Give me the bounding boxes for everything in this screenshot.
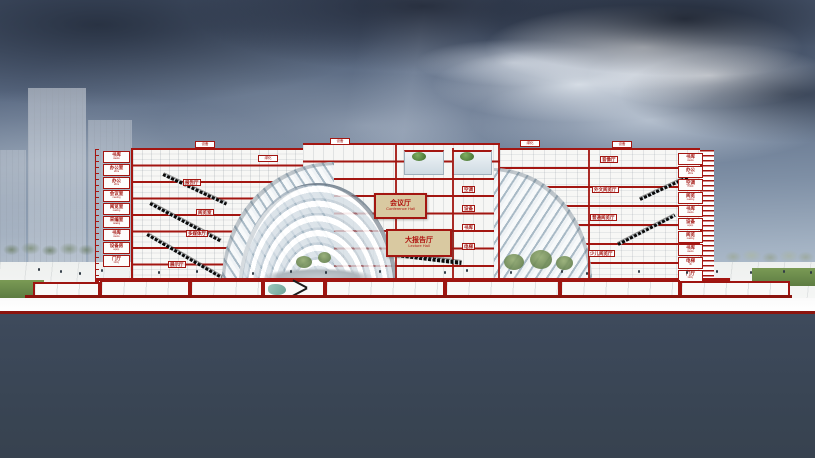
room-label-en: HVAC [680,186,701,188]
dimension-line [95,149,99,295]
room-label-chip: 空调 HVAC [678,179,703,191]
room-label-chip: 会议室 meeting [103,190,130,202]
room-label-en: catalog [105,223,128,225]
room-label-chip: 书库 stacks [678,153,703,165]
water-feature [268,284,286,295]
roof-unit-chip: 绿化 [520,140,540,147]
courtyard-tree [530,250,552,269]
room-label-chip: 办公室 office [103,164,130,176]
room-label-en: meeting [105,197,128,199]
courtyard-tree [504,254,524,270]
room-label-chip: 电梯 lift [678,257,703,269]
lecture-hall-label: 大报告厅 Lecture Hall [386,229,452,257]
room-label-en: lift [680,264,701,266]
roof-unit-chip: 设备 [195,141,215,148]
room-label-chip: 书库 stacks [103,151,130,163]
room-label: 展示厅 [168,261,186,268]
room-label-en: reading [105,210,128,212]
room-label-chip: 设备 equip. [678,218,703,230]
atrium-plant [296,256,312,268]
room-label: 电梯 [462,243,475,250]
room-label-en: office [105,171,128,173]
room-label-en: stacks [105,158,128,160]
room-label-en: equip. [680,225,701,227]
right-room-label-column: 书库 stacks 办公 office 空调 HVAC 阅览 reading 书… [678,153,703,282]
room-label: 外文阅览厅 [592,186,619,193]
room-label-en: reading [680,238,701,240]
room-label-en: equip. [105,249,128,251]
roof-unit-chip: 设备 [330,138,350,145]
roof-plant [412,152,426,161]
room-label-chip: 设备房 equip. [103,242,130,254]
left-room-label-column: 书库 stacks 办公室 office 办公 office 会议室 meeti… [103,151,130,267]
conference-hall-label: 会议厅 Conference Hall [374,193,427,219]
room-label: 阅览室 [196,209,214,216]
foreground-white-band [0,298,815,311]
room-label: 普通阅览厅 [590,214,617,221]
lecture-hall-label-en: Lecture Hall [388,244,450,249]
room-label-en: stacks [680,251,701,253]
room-label-chip: 书库 stacks [678,244,703,256]
room-label-chip: 门厅 lobby [678,270,703,282]
room-label-chip: 采编室 catalog [103,216,130,228]
courtyard-tree [556,256,573,270]
room-label-chip: 门厅 lobby [103,255,130,267]
room-label-en: reading [680,199,701,201]
section-rendering-scene: 会议厅 Conference Hall 大报告厅 Lecture Hall 书库… [0,0,815,458]
room-label: 设备 [462,205,475,212]
room-label-chip: 办公 office [678,166,703,178]
roof-plant [460,152,474,161]
roof-unit-chip: 绿化 [258,155,278,162]
room-label: 书库 [462,224,475,231]
room-label-en: office [105,184,128,186]
room-label-chip: 书库 stacks [678,205,703,217]
conference-hall-label-en: Conference Hall [376,207,425,212]
room-label-en: stacks [680,160,701,162]
foreground-water-plane [0,314,815,458]
room-label: 音像厅 [600,156,618,163]
room-label-en: lobby [680,277,701,279]
atrium-plant [318,252,331,263]
room-label: 少儿阅览厅 [588,250,615,257]
room-label-en: stacks [105,236,128,238]
room-label: 报告厅 [183,179,201,186]
pedestrian-figures [38,268,40,271]
room-label-chip: 办公 office [103,177,130,189]
room-label-chip: 书库 stacks [103,229,130,241]
room-label-chip: 阅览 reading [678,231,703,243]
roof-unit-chip: 设备 [612,141,632,148]
room-label-en: lobby [105,262,128,264]
room-label-en: office [680,173,701,175]
section-cut-column [498,143,500,282]
room-label: 空调 [462,186,475,193]
room-label-chip: 阅览室 reading [103,203,130,215]
tree-row-left [0,238,96,264]
room-label: 多媒体厅 [186,230,208,237]
room-label-chip: 阅览 reading [678,192,703,204]
room-label-en: stacks [680,212,701,214]
